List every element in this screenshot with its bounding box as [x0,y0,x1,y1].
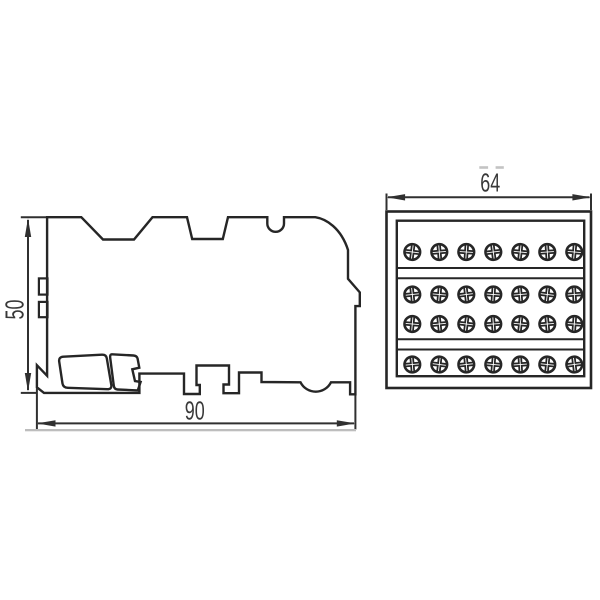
svg-text:90: 90 [185,396,205,425]
svg-text:50: 50 [0,300,29,320]
svg-text:64: 64 [480,168,500,197]
